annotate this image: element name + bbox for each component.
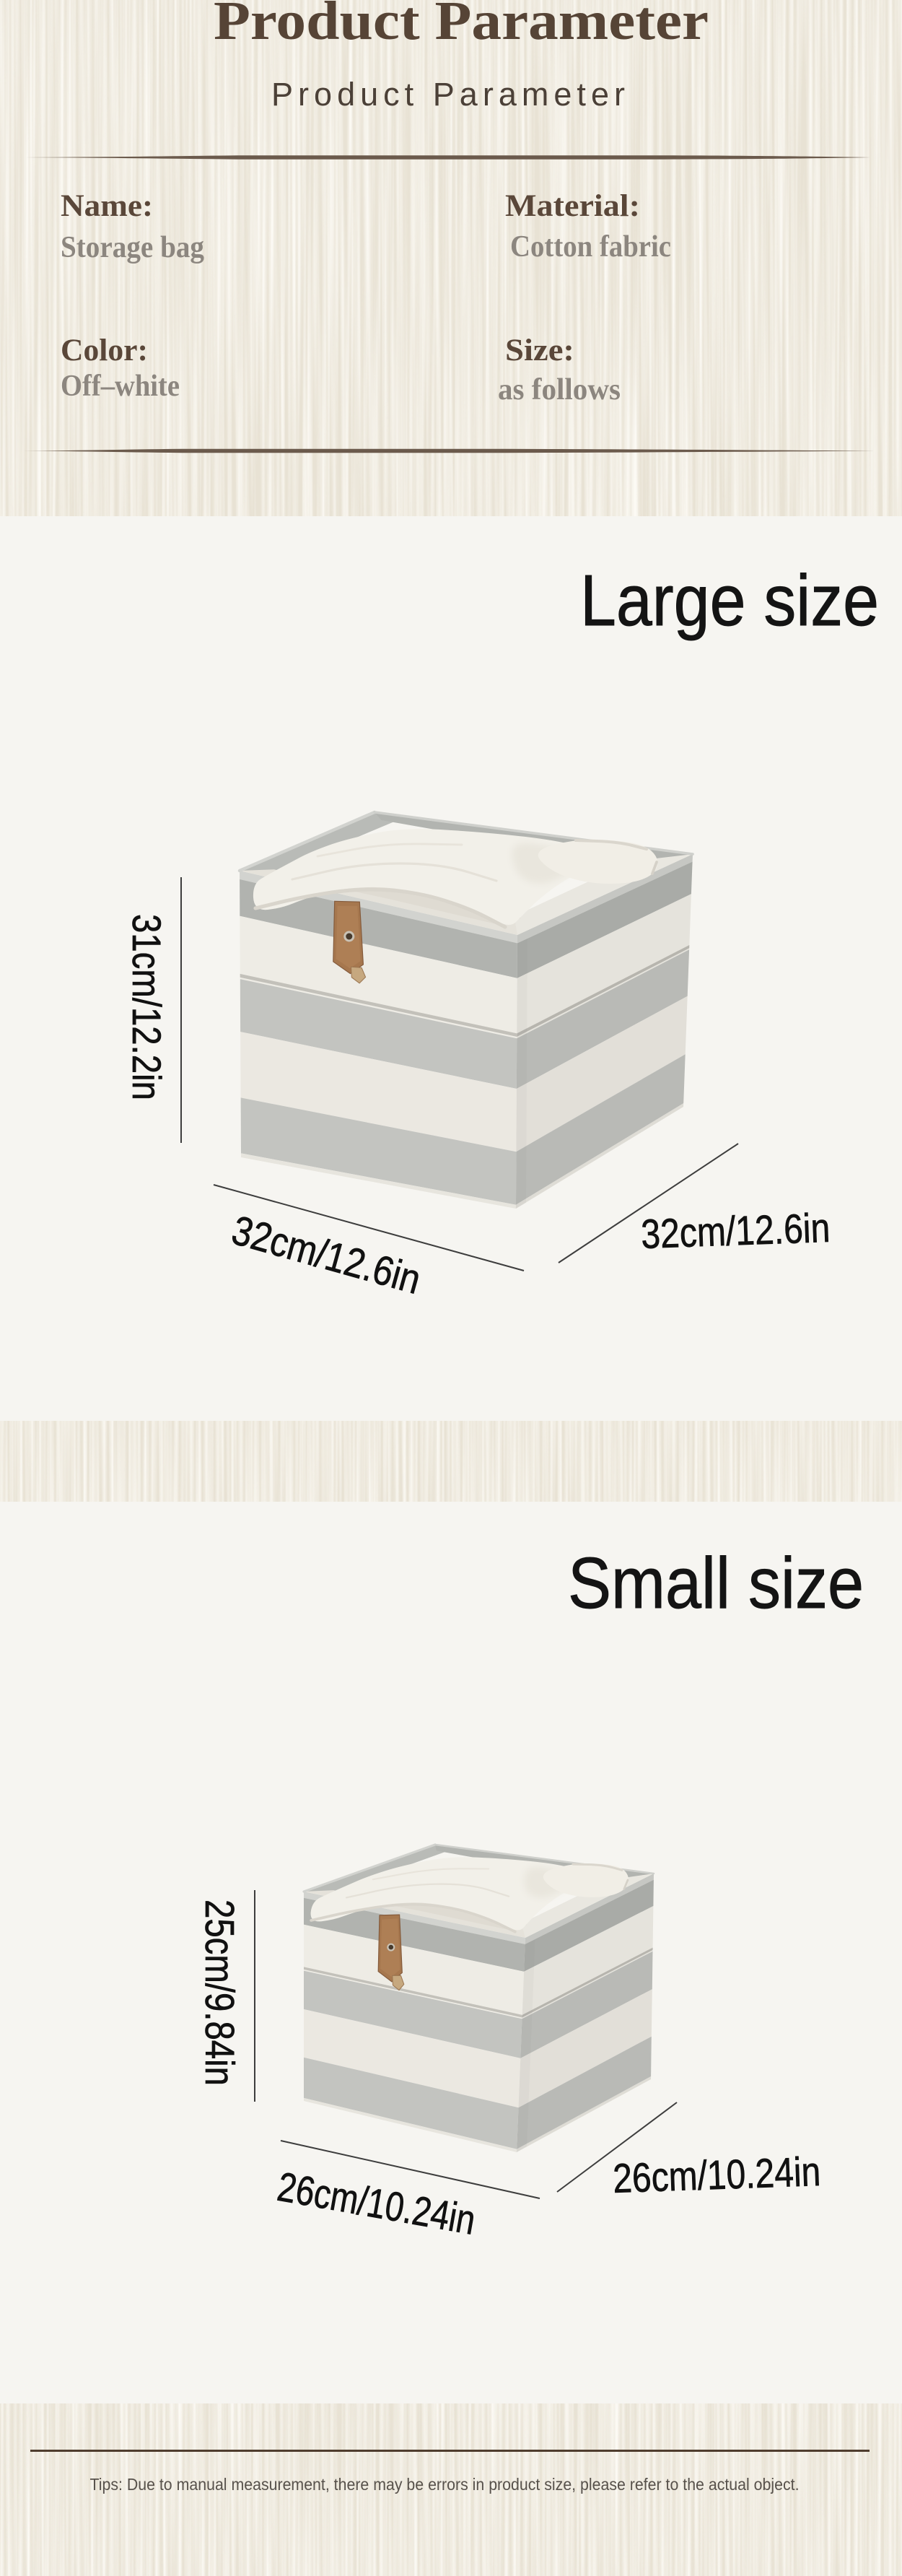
svg-text:26cm/10.24in: 26cm/10.24in <box>612 2149 821 2202</box>
svg-text:Product Parameter: Product Parameter <box>214 0 709 51</box>
svg-text:25cm/9.84in: 25cm/9.84in <box>196 1900 242 2086</box>
svg-text:26cm/10.24in: 26cm/10.24in <box>274 2164 479 2244</box>
svg-text:31cm/12.2in: 31cm/12.2in <box>124 914 170 1100</box>
svg-text:Off–white: Off–white <box>61 370 180 403</box>
svg-text:Cotton fabric: Cotton fabric <box>510 230 671 264</box>
svg-text:Tips: Due to manual measuremen: Tips: Due to manual measurement, there m… <box>90 2475 800 2494</box>
svg-text:Name:: Name: <box>61 189 153 223</box>
svg-text:Size:: Size: <box>505 334 574 367</box>
svg-text:Color:: Color: <box>61 334 148 367</box>
svg-text:32cm/12.6in: 32cm/12.6in <box>227 1207 426 1303</box>
svg-text:as follows: as follows <box>498 373 621 406</box>
svg-text:Storage bag: Storage bag <box>61 231 204 264</box>
svg-text:Large size: Large size <box>580 560 879 641</box>
svg-text:Material:: Material: <box>505 189 640 223</box>
svg-text:Small size: Small size <box>568 1543 864 1624</box>
svg-text:32cm/12.6in: 32cm/12.6in <box>640 1205 831 1258</box>
